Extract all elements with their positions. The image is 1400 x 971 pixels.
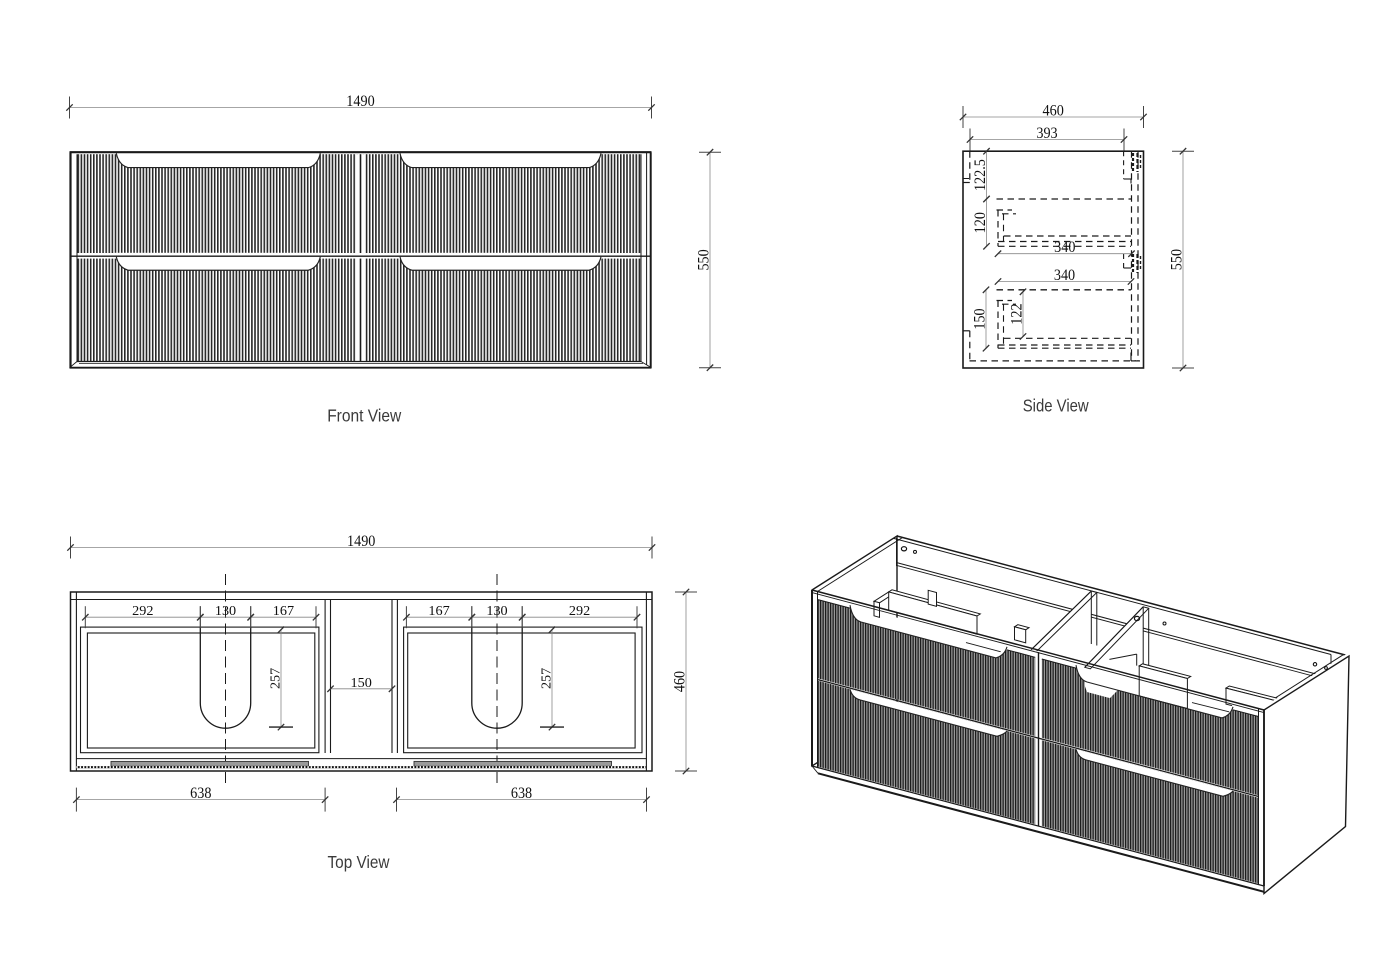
svg-text:340: 340 <box>1054 239 1075 256</box>
svg-text:150: 150 <box>971 308 988 329</box>
svg-text:150: 150 <box>351 676 372 691</box>
svg-text:292: 292 <box>132 604 153 619</box>
svg-text:Side View: Side View <box>1023 396 1089 416</box>
svg-text:167: 167 <box>428 604 449 619</box>
svg-text:257: 257 <box>539 668 554 689</box>
svg-text:130: 130 <box>215 604 236 619</box>
svg-text:120: 120 <box>972 212 989 233</box>
svg-text:550: 550 <box>1169 249 1186 270</box>
svg-text:292: 292 <box>569 604 590 619</box>
svg-text:460: 460 <box>672 671 689 692</box>
svg-text:1490: 1490 <box>346 93 374 110</box>
svg-text:122: 122 <box>1008 303 1025 324</box>
svg-text:Top View: Top View <box>328 852 390 872</box>
svg-text:167: 167 <box>273 604 294 619</box>
svg-text:Front View: Front View <box>327 406 401 426</box>
svg-text:638: 638 <box>190 785 211 802</box>
svg-text:638: 638 <box>511 785 532 802</box>
svg-text:130: 130 <box>486 604 507 619</box>
svg-text:257: 257 <box>268 668 283 689</box>
svg-text:1490: 1490 <box>347 533 375 550</box>
svg-text:340: 340 <box>1054 267 1075 284</box>
svg-text:393: 393 <box>1036 125 1057 142</box>
svg-text:550: 550 <box>696 249 713 270</box>
svg-text:460: 460 <box>1043 102 1064 119</box>
svg-text:122.5: 122.5 <box>972 159 989 191</box>
